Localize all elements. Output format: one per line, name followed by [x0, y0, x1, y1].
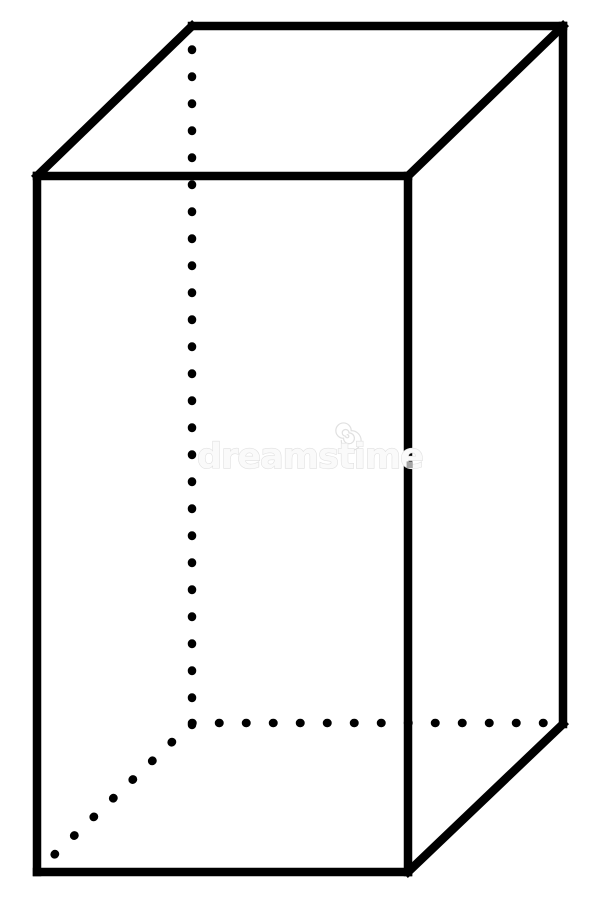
watermark-period: .	[403, 437, 416, 477]
illustration-canvas: dreamstime .	[0, 0, 600, 900]
edge-top-right-diagonal	[408, 26, 563, 176]
rectangular-prism-figure: dreamstime .	[0, 0, 600, 900]
edge-bottom-right-diagonal	[408, 724, 563, 872]
dreamstime-watermark: dreamstime .	[197, 423, 423, 477]
edge-top-left-diagonal	[37, 26, 192, 176]
watermark-text: dreamstime	[197, 437, 423, 477]
edge-bottom-left-diagonal-hidden	[54, 742, 172, 855]
